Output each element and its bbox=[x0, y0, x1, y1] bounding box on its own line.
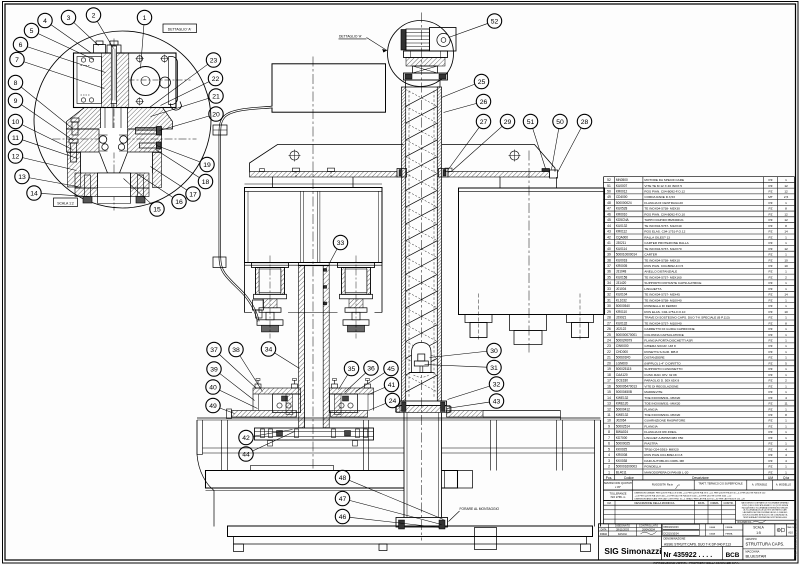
svg-text:GRUPPO: GRUPPO bbox=[746, 537, 757, 541]
svg-text:12: 12 bbox=[784, 247, 788, 251]
svg-text:1: 1 bbox=[785, 201, 787, 205]
svg-text:ANELLO DISTANZIALE: ANELLO DISTANZIALE bbox=[644, 270, 677, 274]
svg-text:PZ: PZ bbox=[769, 218, 773, 222]
svg-text:CARTER: CARTER bbox=[644, 253, 657, 257]
svg-text:KK0038: KK0038 bbox=[616, 459, 627, 463]
svg-text:FIRMA: FIRMA bbox=[726, 533, 733, 536]
svg-text:21: 21 bbox=[212, 93, 220, 100]
svg-text:PZ: PZ bbox=[769, 316, 773, 320]
svg-text:KD7000: KD7000 bbox=[616, 436, 628, 440]
svg-text:CARTER PROTEZIONE RALLA: CARTER PROTEZIONE RALLA bbox=[644, 241, 689, 245]
svg-text:1: 1 bbox=[785, 407, 787, 411]
svg-text:VITE DI REGOLAZIONE: VITE DI REGOLAZIONE bbox=[644, 384, 678, 388]
svg-text:47: 47 bbox=[339, 496, 347, 503]
svg-text:FLANGIA PORTA DISCHETTI ASR: FLANGIA PORTA DISCHETTI ASR bbox=[644, 338, 693, 342]
svg-text:1: 1 bbox=[785, 436, 787, 440]
svg-text:A10: A10 bbox=[788, 531, 793, 535]
svg-text:18: 18 bbox=[202, 179, 210, 186]
svg-text:50000025: 50000025 bbox=[616, 442, 630, 446]
svg-text:1: 1 bbox=[785, 298, 787, 302]
svg-text:34: 34 bbox=[607, 281, 611, 285]
svg-text:44: 44 bbox=[607, 224, 611, 228]
svg-text:DADI AUTOBLOC.C086- M8: DADI AUTOBLOC.C086- M8 bbox=[644, 459, 684, 463]
svg-text:DBD19/10/03: DBD19/10/03 bbox=[664, 526, 680, 529]
svg-text:40: 40 bbox=[209, 384, 217, 391]
svg-text:4: 4 bbox=[785, 453, 787, 457]
svg-text:9: 9 bbox=[14, 98, 18, 105]
svg-text:16: 16 bbox=[607, 384, 611, 388]
svg-text:1: 1 bbox=[785, 424, 787, 428]
svg-text:2: 2 bbox=[92, 12, 96, 19]
svg-text:2: 2 bbox=[785, 275, 787, 279]
svg-text:PZ: PZ bbox=[769, 230, 773, 234]
svg-text:28/11/2003: 28/11/2003 bbox=[616, 528, 629, 532]
svg-text:50002R079: 50002R079 bbox=[616, 338, 632, 342]
svg-text:TRATT. TERMICO C/O SUPERFICIAL: TRATT. TERMICO C/O SUPERFICIALE bbox=[698, 483, 743, 486]
svg-text:8: 8 bbox=[785, 224, 787, 228]
svg-text:KU0528: KU0528 bbox=[616, 207, 628, 211]
svg-text:500010000014: 500010000014 bbox=[616, 253, 637, 257]
svg-text:1: 1 bbox=[785, 350, 787, 354]
svg-text:45: 45 bbox=[387, 366, 395, 373]
svg-text:PZ: PZ bbox=[769, 413, 773, 417]
svg-text:1: 1 bbox=[143, 15, 147, 22]
svg-text:8: 8 bbox=[608, 430, 610, 434]
svg-text:DISTANZIERE: DISTANZIERE bbox=[644, 356, 664, 360]
svg-text:DCD19/10/04: DCD19/10/04 bbox=[664, 533, 680, 536]
svg-text:29: 29 bbox=[607, 310, 611, 314]
svg-text:11: 11 bbox=[784, 402, 787, 406]
svg-text:CARRETTO DI GUIDA CAPRIFONE: CARRETTO DI GUIDA CAPRIFONE bbox=[644, 327, 694, 331]
svg-text:50000412: 50000412 bbox=[616, 407, 630, 411]
svg-text:TE INOX04-5738- M6X10: TE INOX04-5738- M6X10 bbox=[644, 258, 680, 262]
svg-text:51: 51 bbox=[607, 184, 611, 188]
svg-text:FORARE AL MONTAGGIO: FORARE AL MONTAGGIO bbox=[460, 507, 500, 511]
svg-text:33: 33 bbox=[337, 240, 345, 247]
svg-text:26: 26 bbox=[607, 327, 611, 331]
svg-text:J29921: J29921 bbox=[616, 316, 627, 320]
svg-text:48: 48 bbox=[339, 475, 347, 482]
svg-text:PZ: PZ bbox=[769, 424, 773, 428]
svg-text:8: 8 bbox=[785, 413, 787, 417]
svg-text:KU0132: KU0132 bbox=[616, 321, 628, 325]
svg-text:50000540: 50000540 bbox=[616, 304, 630, 308]
svg-text:TE INOX04-5737- M5X45: TE INOX04-5737- M5X45 bbox=[644, 293, 680, 297]
svg-text:1: 1 bbox=[785, 333, 787, 337]
svg-text:PZ: PZ bbox=[769, 258, 773, 262]
svg-text:12: 12 bbox=[784, 189, 788, 193]
svg-text:35: 35 bbox=[607, 275, 611, 279]
svg-text:26/04/2004: 26/04/2004 bbox=[642, 528, 656, 532]
svg-text:CONTR.: CONTR. bbox=[724, 501, 734, 505]
svg-text:39: 39 bbox=[607, 253, 611, 257]
svg-text:20: 20 bbox=[212, 111, 220, 118]
svg-text:52: 52 bbox=[491, 18, 499, 25]
svg-text:ROS PIAN.C04-B092-F.O.8: ROS PIAN.C04-B092-F.O.8 bbox=[644, 453, 682, 457]
svg-text:10: 10 bbox=[607, 419, 611, 423]
svg-text:25: 25 bbox=[478, 79, 486, 86]
svg-text:CORDA RADE D.3,53: CORDA RADE D.3,53 bbox=[644, 195, 675, 199]
svg-text:1: 1 bbox=[785, 390, 787, 394]
svg-text:22: 22 bbox=[212, 76, 220, 83]
svg-text:1: 1 bbox=[785, 384, 787, 388]
svg-text:30: 30 bbox=[490, 348, 498, 355]
svg-text:4: 4 bbox=[608, 453, 610, 457]
svg-text:1: 1 bbox=[785, 270, 787, 274]
svg-text:32: 32 bbox=[607, 293, 611, 297]
svg-text:1: 1 bbox=[785, 344, 787, 348]
svg-text:J02064: J02064 bbox=[616, 419, 627, 423]
svg-text:TE INOX04-5737- M12X40: TE INOX04-5737- M12X40 bbox=[644, 224, 681, 228]
svg-text:12: 12 bbox=[784, 218, 788, 222]
svg-text:1: 1 bbox=[785, 235, 787, 239]
svg-text:1: 1 bbox=[785, 338, 787, 342]
svg-text:SCALA 1:2: SCALA 1:2 bbox=[57, 201, 74, 205]
svg-text:TE INOX04-5737- M10X40: TE INOX04-5737- M10X40 bbox=[644, 321, 681, 325]
svg-text:ASSIE STRUTT.CAPS. DUO T-K DP-: ASSIE STRUTT.CAPS. DUO T-K DP-940 P.113 bbox=[664, 542, 731, 546]
svg-text:Codice: Codice bbox=[624, 476, 634, 480]
svg-text:BCB: BCB bbox=[726, 552, 740, 559]
svg-text:Nr. 435922 BCB DIS.CAD: Nr. 435922 BCB DIS.CAD bbox=[794, 518, 798, 556]
svg-text:TE INOX04-5738- M10X40: TE INOX04-5738- M10X40 bbox=[644, 298, 681, 302]
svg-text:PZ: PZ bbox=[769, 275, 773, 279]
svg-text:7: 7 bbox=[608, 436, 610, 440]
svg-text:MANODOPERA DI PAN.BI L-20: MANODOPERA DI PAN.BI L-20 bbox=[644, 470, 688, 474]
svg-text:13: 13 bbox=[18, 174, 26, 181]
svg-text:ROSETTA S-SUR. MB 8: ROSETTA S-SUR. MB 8 bbox=[644, 350, 678, 354]
svg-text:35: 35 bbox=[348, 366, 356, 373]
svg-text:1: 1 bbox=[785, 373, 787, 377]
svg-text:50000450B: 50000450B bbox=[616, 390, 632, 394]
svg-text:27: 27 bbox=[480, 119, 488, 126]
svg-text:ROS PIAN. C04-B092-F.O.10: ROS PIAN. C04-B092-F.O.10 bbox=[644, 212, 685, 216]
svg-text:23: 23 bbox=[607, 344, 611, 348]
svg-text:RIPRODUZIONE VIETATA - PROPRIE: RIPRODUZIONE VIETATA - PROPRIETA' DELLA … bbox=[654, 561, 740, 565]
svg-text:RALLA OILES? 13: RALLA OILES? 13 bbox=[644, 235, 670, 239]
svg-text:500025115: 500025115 bbox=[616, 367, 632, 371]
svg-text:10: 10 bbox=[784, 258, 788, 262]
svg-text:PZ: PZ bbox=[769, 379, 773, 383]
svg-text:11: 11 bbox=[12, 135, 19, 142]
svg-text:5: 5 bbox=[30, 28, 34, 35]
svg-text:1: 1 bbox=[785, 367, 787, 371]
svg-text:7: 7 bbox=[15, 57, 19, 64]
svg-text:KD5CNA: KD5CNA bbox=[616, 218, 630, 222]
svg-text:17: 17 bbox=[189, 191, 197, 198]
svg-text:27: 27 bbox=[607, 321, 611, 325]
svg-text:KR0005: KR0005 bbox=[616, 264, 628, 268]
svg-text:29: 29 bbox=[504, 119, 512, 126]
svg-text:TAPPO RAPIDO BMK00F21: TAPPO RAPIDO BMK00F21 bbox=[644, 218, 684, 222]
svg-text:PZ: PZ bbox=[769, 350, 773, 354]
svg-text:SUPPORTO ROTANTE CAPSULATRICE: SUPPORTO ROTANTE CAPSULATRICE bbox=[644, 281, 701, 285]
svg-text:16: 16 bbox=[175, 199, 183, 206]
svg-text:UM: UM bbox=[768, 476, 773, 480]
svg-text:PZ: PZ bbox=[769, 241, 773, 245]
svg-text:15: 15 bbox=[153, 206, 161, 213]
svg-text:1: 1 bbox=[785, 327, 787, 331]
svg-text:KU0104: KU0104 bbox=[616, 293, 628, 297]
svg-text:21: 21 bbox=[607, 356, 611, 360]
svg-text:18: 18 bbox=[607, 373, 611, 377]
svg-text:DATA: DATA bbox=[710, 533, 716, 536]
svg-text:PZ: PZ bbox=[769, 327, 773, 331]
svg-text:PZ: PZ bbox=[769, 344, 773, 348]
svg-text:PZ: PZ bbox=[769, 310, 773, 314]
svg-text:BWA024: BWA024 bbox=[616, 430, 629, 434]
svg-text:PZ: PZ bbox=[769, 459, 773, 463]
svg-text:GUARNIZIONE RASPATORE: GUARNIZIONE RASPATORE bbox=[644, 419, 685, 423]
svg-text:1:5: 1:5 bbox=[756, 531, 761, 535]
svg-text:DATA: DATA bbox=[698, 501, 705, 505]
svg-text:36: 36 bbox=[607, 270, 611, 274]
svg-text:KWE132: KWE132 bbox=[616, 413, 629, 417]
svg-text:(NIPPLO) 1-4" O DIRITTO: (NIPPLO) 1-4" O DIRITTO bbox=[644, 361, 681, 365]
svg-text:34: 34 bbox=[265, 346, 273, 353]
svg-text:4: 4 bbox=[785, 396, 787, 400]
svg-text:PZ: PZ bbox=[769, 207, 773, 211]
svg-text:51: 51 bbox=[527, 119, 535, 126]
svg-text:LINGUETTA: LINGUETTA bbox=[644, 287, 662, 291]
svg-text:MADREVITE: MADREVITE bbox=[644, 390, 662, 394]
svg-text:1: 1 bbox=[785, 253, 787, 257]
svg-text:TOE INOX06/931- M6X20: TOE INOX06/931- M6X20 bbox=[644, 402, 680, 406]
svg-text:10: 10 bbox=[784, 264, 788, 268]
svg-text:46: 46 bbox=[607, 212, 611, 216]
svg-text:KWE132: KWE132 bbox=[616, 396, 629, 400]
svg-text:500000024: 500000024 bbox=[616, 201, 632, 205]
svg-text:3: 3 bbox=[608, 459, 610, 463]
svg-text:15: 15 bbox=[607, 390, 611, 394]
svg-text:TPS(I-C04-5933- M8X20: TPS(I-C04-5933- M8X20 bbox=[644, 447, 678, 451]
svg-text:SCALA: SCALA bbox=[753, 525, 764, 529]
svg-text:Nr 435922 . . . .: Nr 435922 . . . . bbox=[664, 552, 713, 559]
svg-text:TERZI SENZA AUTORIZZAZIONE SCR: TERZI SENZA AUTORIZZAZIONE SCRITTA DELLA… bbox=[743, 516, 788, 519]
svg-text:14: 14 bbox=[607, 396, 611, 400]
svg-text:1: 1 bbox=[785, 465, 787, 469]
svg-text:500005470013: 500005470013 bbox=[616, 384, 637, 388]
svg-text:TOLLERANZE: TOLLERANZE bbox=[610, 492, 627, 496]
svg-text:PZ: PZ bbox=[769, 304, 773, 308]
svg-text:ROS PIAN. C04-B092-F.O.5: ROS PIAN. C04-B092-F.O.5 bbox=[644, 264, 683, 268]
svg-text:PZ: PZ bbox=[769, 184, 773, 188]
svg-text:TE INOX04-5737- M5X160: TE INOX04-5737- M5X160 bbox=[644, 275, 681, 279]
svg-text:DESCRIZIONE DELLA MODIFICA: DESCRIZIONE DELLA MODIFICA bbox=[635, 501, 675, 505]
svg-text:PZ: PZ bbox=[769, 293, 773, 297]
svg-text:BLUESTAR: BLUESTAR bbox=[746, 554, 767, 559]
svg-text:5: 5 bbox=[608, 447, 610, 451]
svg-text:1: 1 bbox=[785, 430, 787, 434]
svg-text:49: 49 bbox=[209, 403, 217, 410]
svg-text:J31048: J31048 bbox=[616, 270, 627, 274]
svg-text:DETTAGLIO 'A': DETTAGLIO 'A' bbox=[168, 27, 192, 31]
svg-text:PZ: PZ bbox=[769, 419, 773, 423]
svg-text:KK0025: KK0025 bbox=[616, 447, 627, 451]
svg-text:LINGUET.A-B056/C083 X50: LINGUET.A-B056/C083 X50 bbox=[644, 436, 683, 440]
svg-text:DISEGNATO: DISEGNATO bbox=[615, 524, 630, 528]
svg-text:DATA: DATA bbox=[710, 526, 716, 529]
svg-text:J31420: J31420 bbox=[616, 281, 627, 285]
svg-text:CWK000: CWK000 bbox=[616, 344, 629, 348]
svg-text:52: 52 bbox=[607, 178, 611, 182]
svg-text:49: 49 bbox=[607, 195, 611, 199]
svg-text:PZ: PZ bbox=[769, 436, 773, 440]
svg-text:PZ: PZ bbox=[769, 430, 773, 434]
svg-text:PZ: PZ bbox=[769, 224, 773, 228]
svg-text:KU0018: KU0018 bbox=[616, 258, 628, 262]
svg-text:28: 28 bbox=[607, 316, 611, 320]
svg-text:14: 14 bbox=[30, 190, 38, 197]
svg-text:FIRMA: FIRMA bbox=[600, 533, 608, 536]
svg-text:4: 4 bbox=[785, 447, 787, 451]
svg-text:PZ: PZ bbox=[769, 384, 773, 388]
svg-text:KR0112: KR0112 bbox=[616, 230, 627, 234]
svg-text:PZ: PZ bbox=[769, 356, 773, 360]
svg-text:17: 17 bbox=[607, 379, 611, 383]
svg-text:43: 43 bbox=[607, 230, 611, 234]
svg-text:STRUTTURA CAPS.: STRUTTURA CAPS. bbox=[746, 542, 785, 547]
svg-text:SIG Simonazzi: SIG Simonazzi bbox=[604, 546, 661, 556]
svg-text:1: 1 bbox=[785, 316, 787, 320]
svg-text:9: 9 bbox=[608, 424, 610, 428]
svg-text:PZ: PZ bbox=[769, 333, 773, 337]
svg-text:4: 4 bbox=[43, 18, 47, 25]
svg-text:39: 39 bbox=[210, 366, 218, 373]
svg-text:38: 38 bbox=[232, 347, 240, 354]
svg-text:PZ: PZ bbox=[769, 189, 773, 193]
svg-text:1: 1 bbox=[785, 281, 787, 285]
svg-text:BL4011: BL4011 bbox=[616, 470, 627, 474]
svg-text:J01004: J01004 bbox=[616, 287, 627, 291]
svg-text:37: 37 bbox=[607, 264, 611, 268]
svg-text:Q.ta: Q.ta bbox=[783, 476, 789, 480]
svg-text:SUPPORTO CUSCINETTO: SUPPORTO CUSCINETTO bbox=[644, 367, 683, 371]
svg-text:10: 10 bbox=[12, 119, 20, 126]
svg-text:8: 8 bbox=[785, 207, 787, 211]
svg-text:31: 31 bbox=[490, 365, 498, 372]
svg-text:PZ: PZ bbox=[769, 470, 773, 474]
svg-text:FLANGIA DI RIF.FREG.: FLANGIA DI RIF.FREG. bbox=[644, 430, 677, 434]
svg-text:KL1032: KL1032 bbox=[616, 298, 627, 302]
svg-text:TE INOX04-5737- M12X70: TE INOX04-5737- M12X70 bbox=[644, 247, 681, 251]
svg-text:PZ: PZ bbox=[769, 281, 773, 285]
svg-text:+-0.3 PER QUOTE F/A 120 E 400: +-0.3 PER QUOTE F/A 120 E 400 +-0.5 PER … bbox=[635, 495, 733, 498]
svg-text:PIASTRA: PIASTRA bbox=[644, 442, 658, 446]
svg-text:CUSC.RAD. RIV. 32 08: CUSC.RAD. RIV. 32 08 bbox=[644, 373, 676, 377]
svg-text:30: 30 bbox=[607, 304, 611, 308]
svg-text:I.M.: I.M. bbox=[607, 501, 612, 505]
svg-text:28: 28 bbox=[581, 119, 589, 126]
svg-text:PZ: PZ bbox=[769, 264, 773, 268]
svg-text:1: 1 bbox=[785, 470, 787, 474]
svg-text:J30211: J30211 bbox=[616, 241, 626, 245]
svg-text:22: 22 bbox=[607, 350, 611, 354]
svg-text:500000070001: 500000070001 bbox=[616, 333, 637, 337]
svg-text:ISO 2768- m: ISO 2768- m bbox=[611, 495, 626, 499]
svg-text:43: 43 bbox=[493, 398, 501, 405]
svg-text:CQA000: CQA000 bbox=[616, 235, 628, 239]
svg-text:26: 26 bbox=[480, 99, 488, 106]
svg-text:KU0114: KU0114 bbox=[616, 247, 627, 251]
svg-text:FLANGIA: FLANGIA bbox=[644, 424, 658, 428]
svg-text:OCE180: OCE180 bbox=[616, 379, 628, 383]
svg-text:12: 12 bbox=[784, 184, 788, 188]
svg-text:KR0012: KR0012 bbox=[616, 189, 628, 193]
svg-text:PZ: PZ bbox=[769, 321, 773, 325]
svg-text:VITE TE M 12 X 40 INOX 5: VITE TE M 12 X 40 INOX 5 bbox=[644, 184, 682, 188]
svg-text:50: 50 bbox=[556, 119, 564, 126]
svg-text:KWE120: KWE120 bbox=[616, 402, 629, 406]
svg-text:DENOMINAZIONE: DENOMINAZIONE bbox=[664, 537, 686, 541]
svg-text:19: 19 bbox=[607, 367, 611, 371]
svg-text:PZ: PZ bbox=[769, 442, 773, 446]
svg-text:1: 1 bbox=[785, 356, 787, 360]
svg-text:KR0010: KR0010 bbox=[616, 212, 628, 216]
svg-text:2,5: 2,5 bbox=[784, 195, 789, 199]
svg-text:CONTROLLATO: CONTROLLATO bbox=[639, 524, 658, 528]
svg-text:10: 10 bbox=[784, 310, 788, 314]
svg-text:x 45°: x 45° bbox=[615, 485, 621, 489]
svg-text:50: 50 bbox=[607, 189, 611, 193]
svg-text:2: 2 bbox=[785, 379, 787, 383]
svg-text:TOE INOX06/931- M6X20: TOE INOX06/931- M6X20 bbox=[644, 396, 680, 400]
svg-text:12: 12 bbox=[784, 212, 788, 216]
svg-text:PZ: PZ bbox=[769, 235, 773, 239]
svg-text:PZ: PZ bbox=[769, 178, 773, 182]
svg-text:36: 36 bbox=[367, 365, 375, 372]
svg-text:13: 13 bbox=[607, 402, 611, 406]
svg-text:MN0500: MN0500 bbox=[616, 178, 628, 182]
svg-text:1: 1 bbox=[785, 178, 787, 182]
svg-text:CHD000: CHD000 bbox=[616, 350, 628, 354]
svg-text:PARAOLIO D. 50X 65X 8: PARAOLIO D. 50X 65X 8 bbox=[644, 379, 679, 383]
svg-text:33: 33 bbox=[607, 287, 611, 291]
svg-text:4: 4 bbox=[785, 459, 787, 463]
svg-text:ROS ELAS. C04-1751-F.O.10: ROS ELAS. C04-1751-F.O.10 bbox=[644, 310, 685, 314]
svg-text:47: 47 bbox=[607, 207, 611, 211]
svg-text:24: 24 bbox=[389, 398, 397, 405]
svg-text:FLANGIA DI CENTRAGGIO: FLANGIA DI CENTRAGGIO bbox=[644, 201, 683, 205]
svg-text:6: 6 bbox=[19, 42, 23, 49]
svg-text:J02122: J02122 bbox=[616, 327, 627, 331]
svg-text:PZ: PZ bbox=[769, 402, 773, 406]
svg-text:COLONNA CAPSULATRICE: COLONNA CAPSULATRICE bbox=[644, 333, 683, 337]
svg-text:1: 1 bbox=[785, 287, 787, 291]
svg-text:32: 32 bbox=[493, 381, 501, 388]
svg-text:RONDELLA DI FERMO: RONDELLA DI FERMO bbox=[644, 304, 677, 308]
svg-text:41: 41 bbox=[607, 241, 611, 245]
svg-text:CD4000: CD4000 bbox=[616, 195, 628, 199]
svg-text:6: 6 bbox=[608, 442, 610, 446]
svg-text:44: 44 bbox=[242, 451, 250, 458]
svg-text:RUGOSITA' Ra in: RUGOSITA' Ra in bbox=[652, 483, 674, 487]
svg-text:KR0110: KR0110 bbox=[616, 310, 627, 314]
svg-text:500001600003: 500001600003 bbox=[616, 465, 637, 469]
svg-text:TRAVE DI SOSTEGNO CAPS. DUO T-: TRAVE DI SOSTEGNO CAPS. DUO T-K SPECIALE… bbox=[644, 316, 729, 320]
svg-text:25: 25 bbox=[607, 333, 611, 337]
svg-text:14: 14 bbox=[784, 293, 788, 297]
svg-text:PZ: PZ bbox=[769, 201, 773, 205]
svg-text:PZ: PZ bbox=[769, 253, 773, 257]
svg-text:PZ: PZ bbox=[769, 465, 773, 469]
svg-text:1: 1 bbox=[785, 304, 787, 308]
svg-text:2: 2 bbox=[608, 465, 610, 469]
svg-text:GHIERA SICUR. UM 8: GHIERA SICUR. UM 8 bbox=[644, 344, 676, 348]
svg-text:PZ: PZ bbox=[769, 367, 773, 371]
svg-text:PZ: PZ bbox=[769, 361, 773, 365]
svg-text:MT: MT bbox=[768, 195, 773, 199]
svg-text:14: 14 bbox=[784, 230, 788, 234]
